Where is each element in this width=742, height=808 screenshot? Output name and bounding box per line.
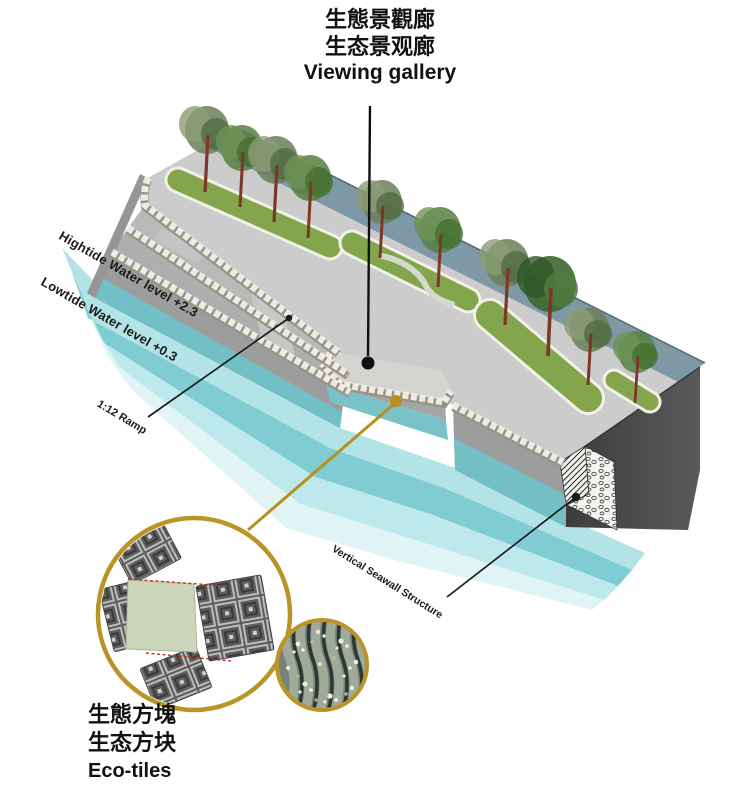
- seawall-dot: [572, 493, 580, 501]
- eco-tile-dot: [390, 395, 402, 407]
- eco-tiles-label-block: 生態方塊 生态方块 Eco-tiles: [88, 701, 176, 785]
- title-traditional: 生態景觀廊: [250, 6, 510, 33]
- eco-tiles-english: Eco-tiles: [88, 757, 176, 785]
- viewing-gallery-dot: [362, 357, 375, 370]
- ramp-dot: [286, 315, 292, 321]
- tile-substrate-panel: [126, 580, 197, 652]
- title-simplified: 生态景观廊: [250, 33, 510, 60]
- eco-tile-detail-circle: [98, 518, 290, 710]
- title-block: 生態景觀廊 生态景观廊 Viewing gallery: [250, 6, 510, 86]
- title-english: Viewing gallery: [250, 60, 510, 86]
- eco-seawall-diagram: 生態景觀廊 生态景观廊 Viewing gallery Hightide Wat…: [0, 0, 742, 808]
- eco-tiles-simplified: 生态方块: [88, 729, 176, 757]
- eco-tiles-traditional: 生態方塊: [88, 701, 176, 729]
